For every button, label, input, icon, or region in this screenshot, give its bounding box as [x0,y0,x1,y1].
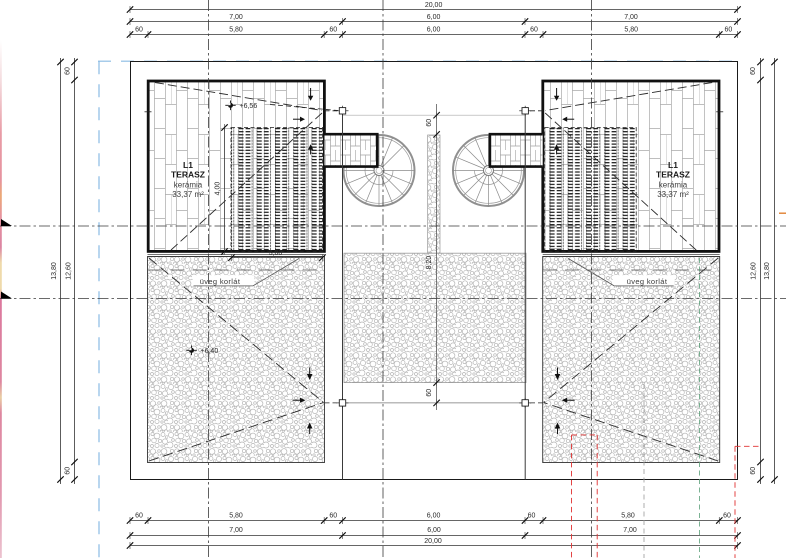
svg-text:60: 60 [329,27,337,34]
svg-text:5,80: 5,80 [624,27,638,34]
svg-text:7,00: 7,00 [623,527,637,534]
svg-text:60: 60 [750,67,757,75]
svg-text:60: 60 [65,467,72,475]
svg-text:7,00: 7,00 [624,14,638,21]
svg-text:33,37 m²: 33,37 m² [657,190,689,199]
svg-text:7,00: 7,00 [229,14,243,21]
svg-text:60: 60 [426,389,433,397]
svg-text:L1: L1 [668,160,678,170]
svg-text:6,00: 6,00 [427,527,441,534]
svg-text:12,60: 12,60 [66,262,73,280]
svg-text:13,80: 13,80 [764,262,771,280]
svg-text:3,00: 3,00 [269,250,283,257]
svg-text:6,00: 6,00 [427,512,441,519]
svg-text:60: 60 [65,67,72,75]
svg-text:60: 60 [426,119,433,127]
svg-text:12,60: 12,60 [751,262,758,280]
svg-text:+6,40: +6,40 [201,348,219,355]
svg-text:kerámia: kerámia [659,180,688,189]
svg-text:üveg korlát: üveg korlát [627,277,668,286]
svg-text:60: 60 [750,467,757,475]
svg-text:60: 60 [723,512,731,519]
svg-text:+6,56: +6,56 [240,103,258,110]
svg-text:4,00: 4,00 [215,182,222,196]
svg-text:7,00: 7,00 [229,527,243,534]
svg-text:5,80: 5,80 [229,27,243,34]
svg-text:60: 60 [135,512,143,519]
svg-text:6,00: 6,00 [427,27,441,34]
svg-text:TERASZ: TERASZ [171,170,205,180]
svg-text:6,00: 6,00 [427,14,441,21]
svg-text:13,80: 13,80 [51,262,58,280]
svg-text:60: 60 [135,27,143,34]
svg-text:5,80: 5,80 [229,512,243,519]
svg-text:TERASZ: TERASZ [656,170,690,180]
svg-text:60: 60 [329,512,337,519]
svg-text:5,80: 5,80 [621,512,635,519]
svg-text:60: 60 [530,27,538,34]
svg-text:20,00: 20,00 [424,538,442,545]
svg-text:üveg korlát: üveg korlát [200,277,241,286]
svg-text:8,20: 8,20 [426,256,433,270]
svg-text:33,37 m²: 33,37 m² [172,190,204,199]
svg-text:60: 60 [528,512,536,519]
svg-text:60: 60 [725,27,733,34]
svg-text:L1: L1 [183,160,193,170]
svg-text:20,00: 20,00 [425,2,443,9]
svg-text:kerámia: kerámia [174,180,203,189]
